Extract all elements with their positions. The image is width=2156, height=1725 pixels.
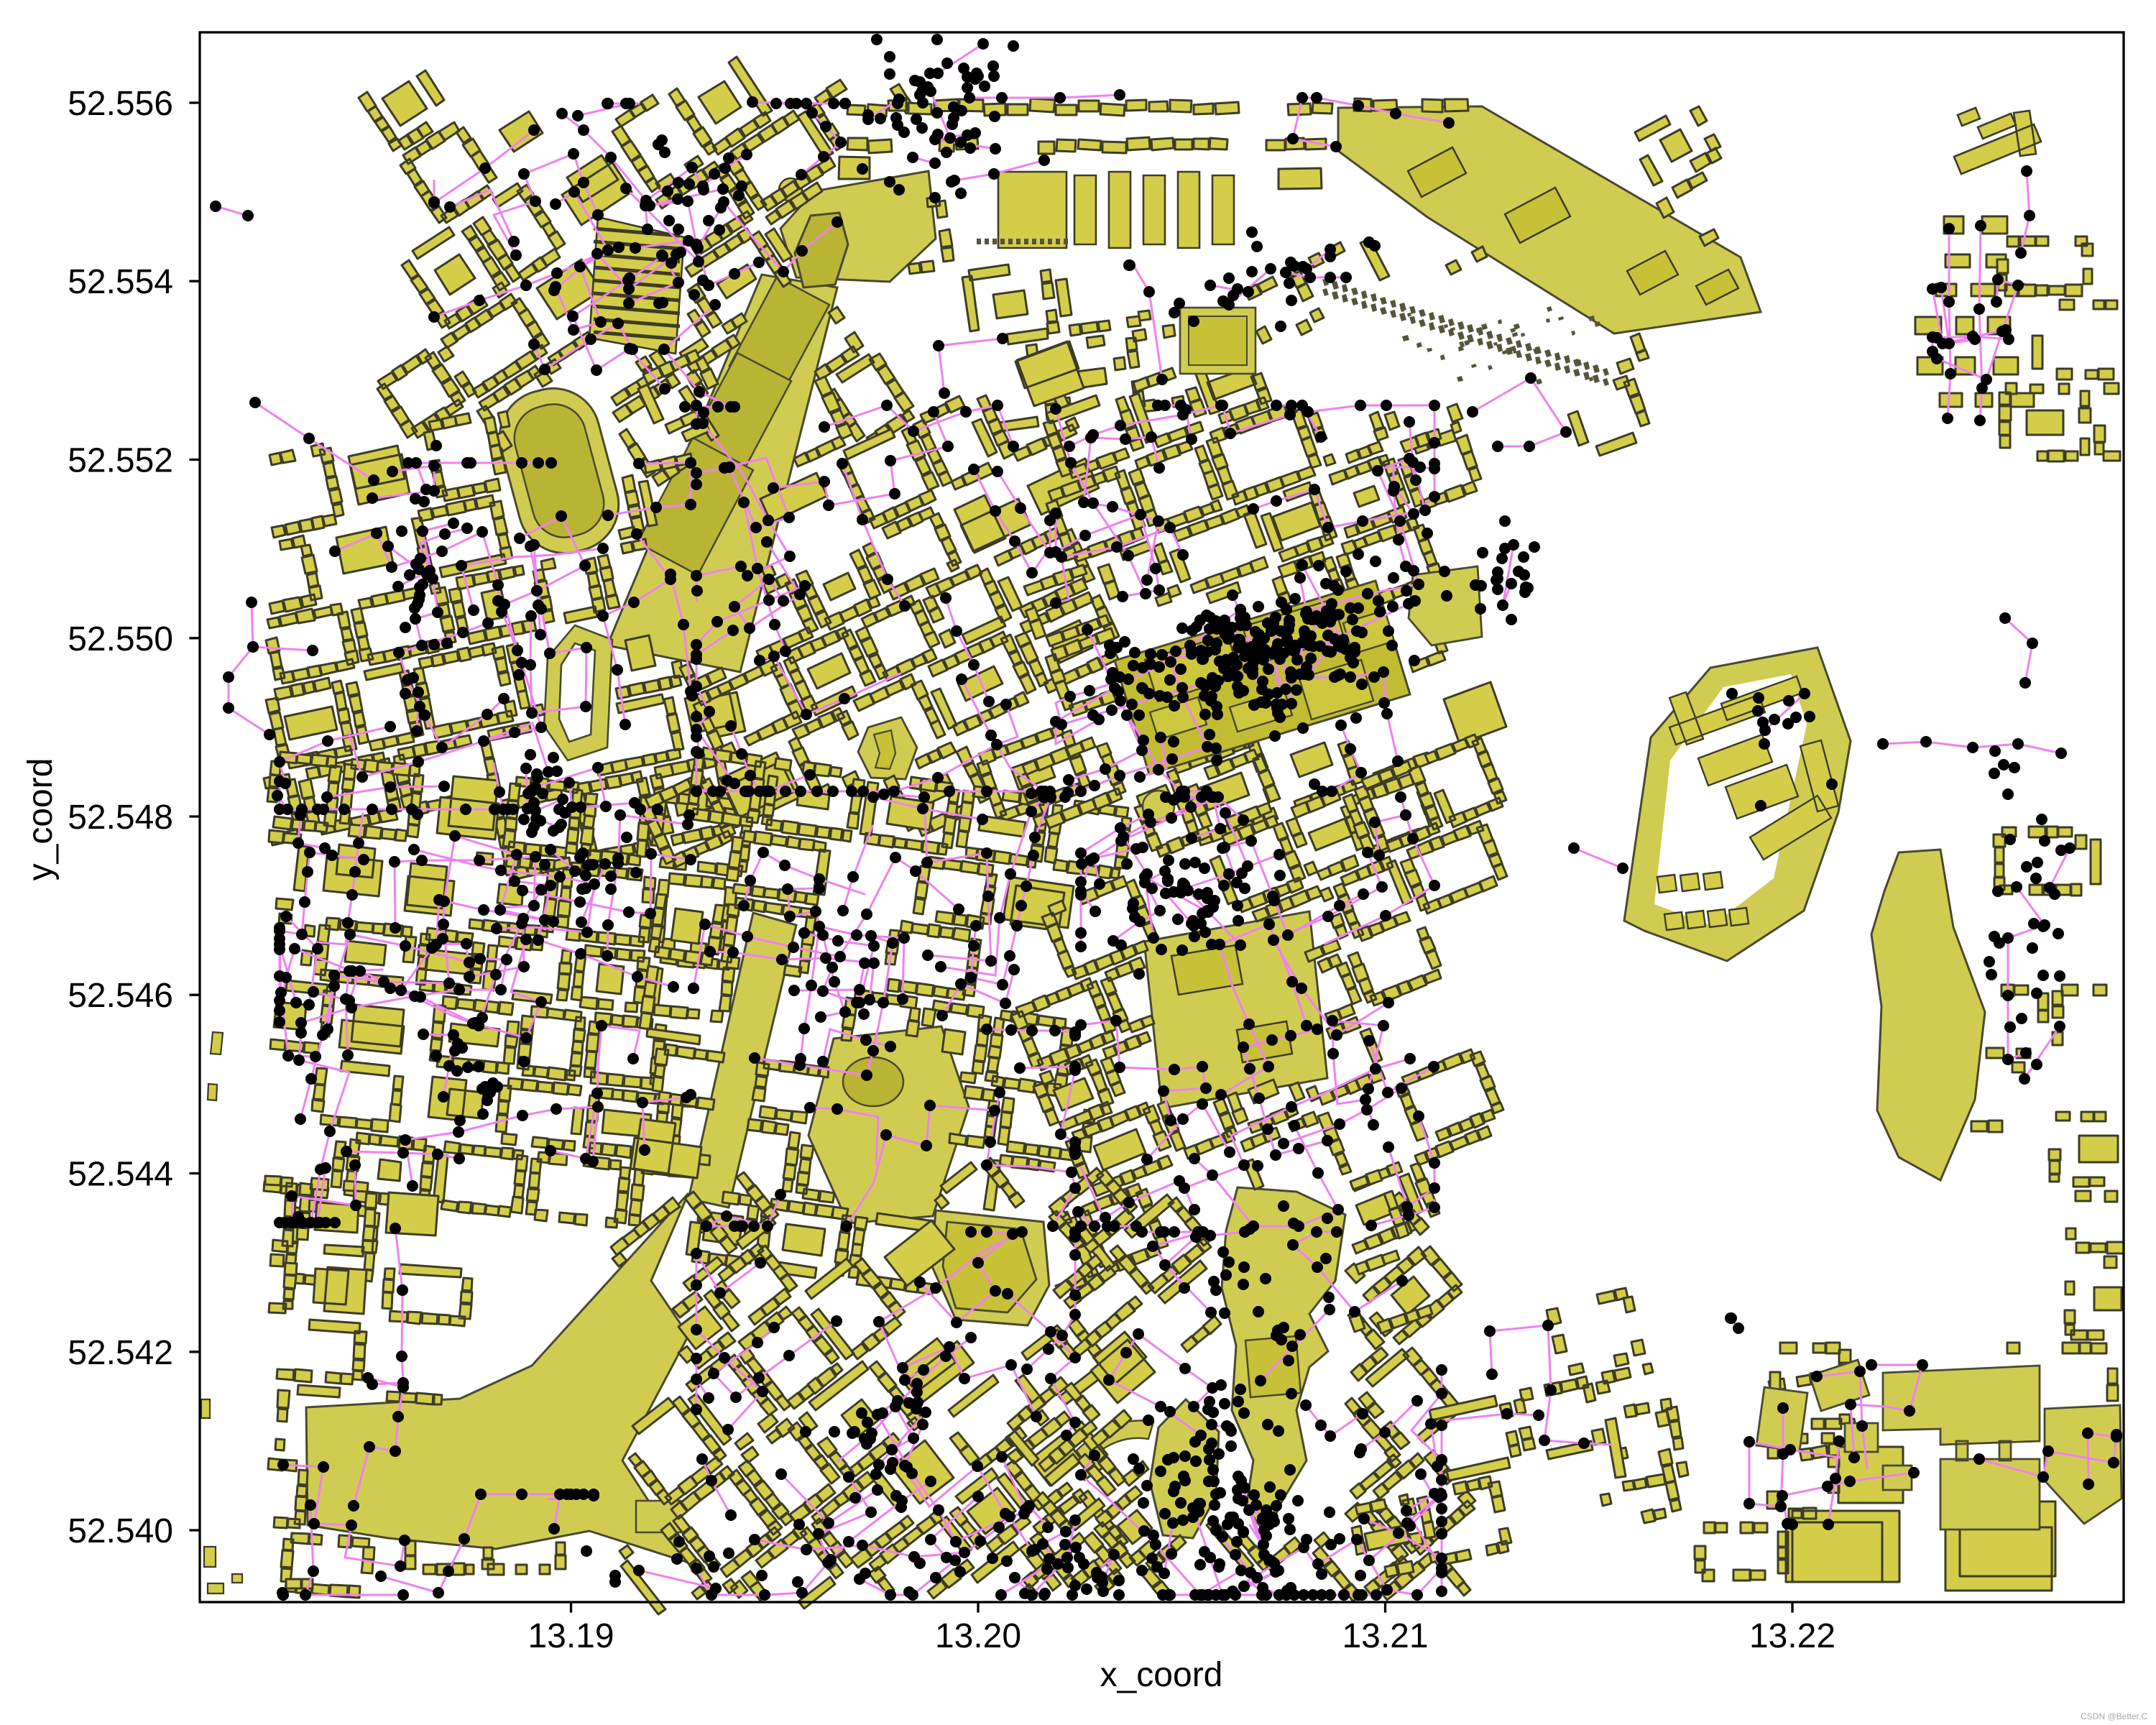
- svg-text:52.550: 52.550: [68, 620, 173, 658]
- svg-text:13.21: 13.21: [1342, 1617, 1428, 1655]
- svg-text:CSDN @Better.C: CSDN @Better.C: [2081, 1711, 2147, 1721]
- svg-text:52.540: 52.540: [68, 1512, 173, 1550]
- svg-text:13.22: 13.22: [1749, 1617, 1835, 1655]
- svg-text:52.542: 52.542: [68, 1334, 173, 1372]
- svg-text:52.544: 52.544: [68, 1156, 173, 1194]
- svg-text:52.546: 52.546: [68, 977, 173, 1015]
- svg-text:y_coord: y_coord: [22, 758, 60, 881]
- svg-text:52.552: 52.552: [68, 442, 173, 480]
- svg-text:x_coord: x_coord: [1100, 1656, 1223, 1694]
- svg-text:52.554: 52.554: [68, 263, 173, 301]
- svg-text:13.19: 13.19: [528, 1617, 614, 1655]
- svg-text:52.548: 52.548: [68, 799, 173, 837]
- svg-text:52.556: 52.556: [68, 85, 173, 123]
- svg-text:13.20: 13.20: [935, 1617, 1021, 1655]
